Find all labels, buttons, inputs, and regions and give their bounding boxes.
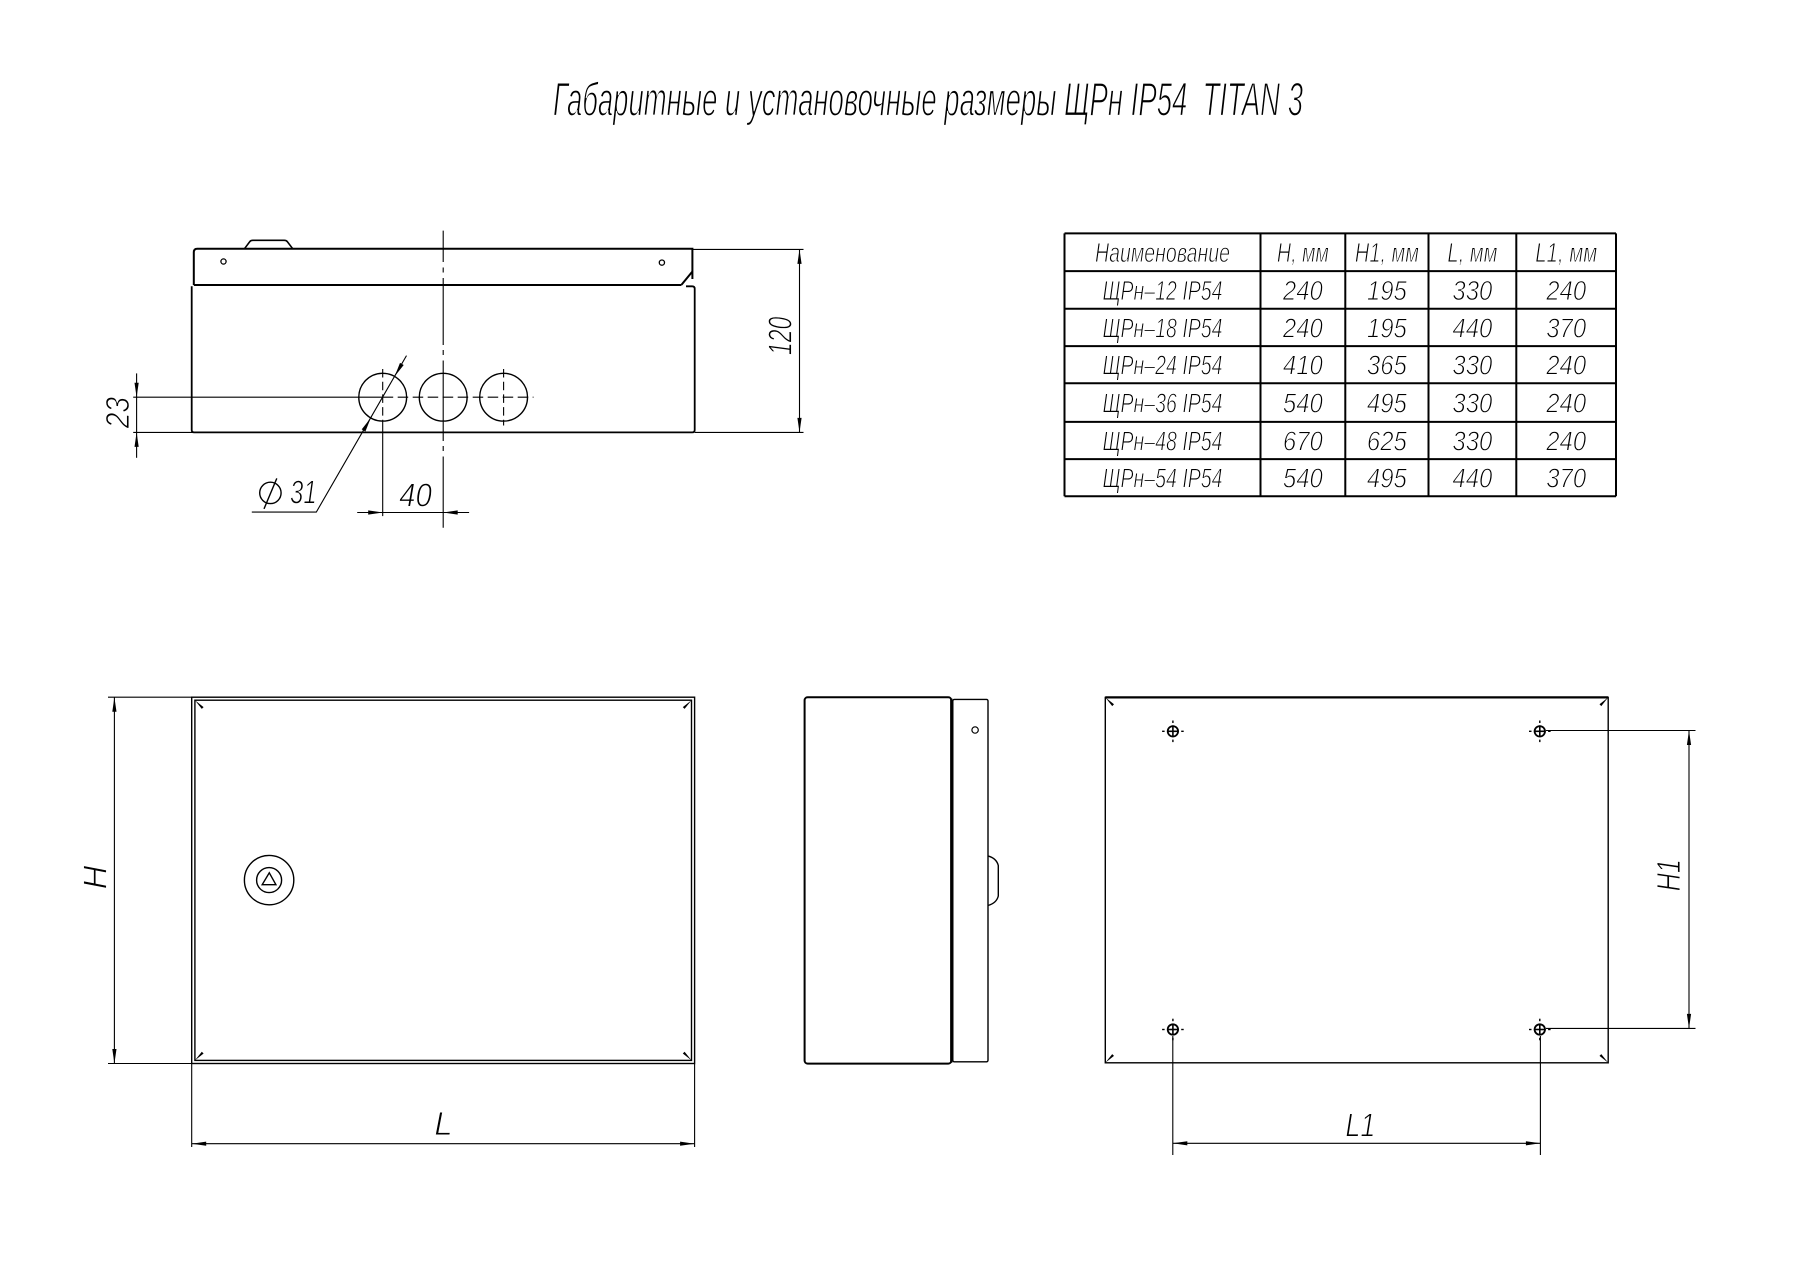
svg-text:240: 240 (1545, 275, 1586, 306)
svg-text:L, мм: L, мм (1447, 237, 1497, 268)
svg-text:ЩРн–54 IP54: ЩРн–54 IP54 (1103, 463, 1223, 494)
svg-text:Наименование: Наименование (1095, 237, 1230, 268)
svg-text:240: 240 (1282, 313, 1323, 344)
svg-text:40: 40 (399, 476, 432, 513)
svg-text:L: L (434, 1105, 452, 1142)
svg-text:120: 120 (762, 316, 799, 355)
svg-text:Габаритные и установочные разм: Габаритные и установочные размеры ЩРн IP… (553, 72, 1303, 125)
svg-text:330: 330 (1452, 275, 1493, 306)
svg-text:ЩРн–18 IP54: ЩРн–18 IP54 (1103, 313, 1223, 344)
svg-text:ЩРн–36 IP54: ЩРн–36 IP54 (1103, 388, 1223, 419)
svg-text:H1: H1 (1650, 859, 1687, 891)
svg-text:240: 240 (1282, 275, 1323, 306)
svg-text:540: 540 (1283, 463, 1324, 494)
svg-text:330: 330 (1452, 350, 1493, 381)
svg-text:23: 23 (99, 396, 136, 429)
svg-text:H, мм: H, мм (1277, 237, 1329, 268)
svg-text:ЩРн–48 IP54: ЩРн–48 IP54 (1103, 426, 1223, 457)
svg-text:240: 240 (1545, 350, 1586, 381)
svg-text:495: 495 (1367, 463, 1408, 494)
svg-text:370: 370 (1546, 463, 1587, 494)
svg-text:240: 240 (1545, 426, 1586, 457)
svg-text:670: 670 (1283, 426, 1324, 457)
svg-text:H: H (77, 865, 114, 889)
svg-text:L1, мм: L1, мм (1535, 237, 1597, 268)
svg-text:540: 540 (1283, 388, 1324, 419)
svg-text:31: 31 (290, 474, 317, 511)
svg-text:L1: L1 (1345, 1107, 1375, 1144)
svg-text:195: 195 (1367, 313, 1408, 344)
svg-text:410: 410 (1283, 350, 1324, 381)
svg-text:365: 365 (1367, 350, 1408, 381)
svg-text:330: 330 (1452, 426, 1493, 457)
svg-text:370: 370 (1546, 313, 1587, 344)
svg-text:495: 495 (1367, 388, 1408, 419)
svg-text:ЩРн–24 IP54: ЩРн–24 IP54 (1103, 350, 1223, 381)
svg-text:440: 440 (1452, 313, 1493, 344)
svg-text:625: 625 (1367, 426, 1408, 457)
svg-text:ЩРн–12 IP54: ЩРн–12 IP54 (1103, 275, 1223, 306)
svg-text:195: 195 (1367, 275, 1408, 306)
svg-text:330: 330 (1452, 388, 1493, 419)
svg-text:440: 440 (1452, 463, 1493, 494)
svg-text:240: 240 (1545, 388, 1586, 419)
svg-text:H1, мм: H1, мм (1355, 237, 1419, 268)
